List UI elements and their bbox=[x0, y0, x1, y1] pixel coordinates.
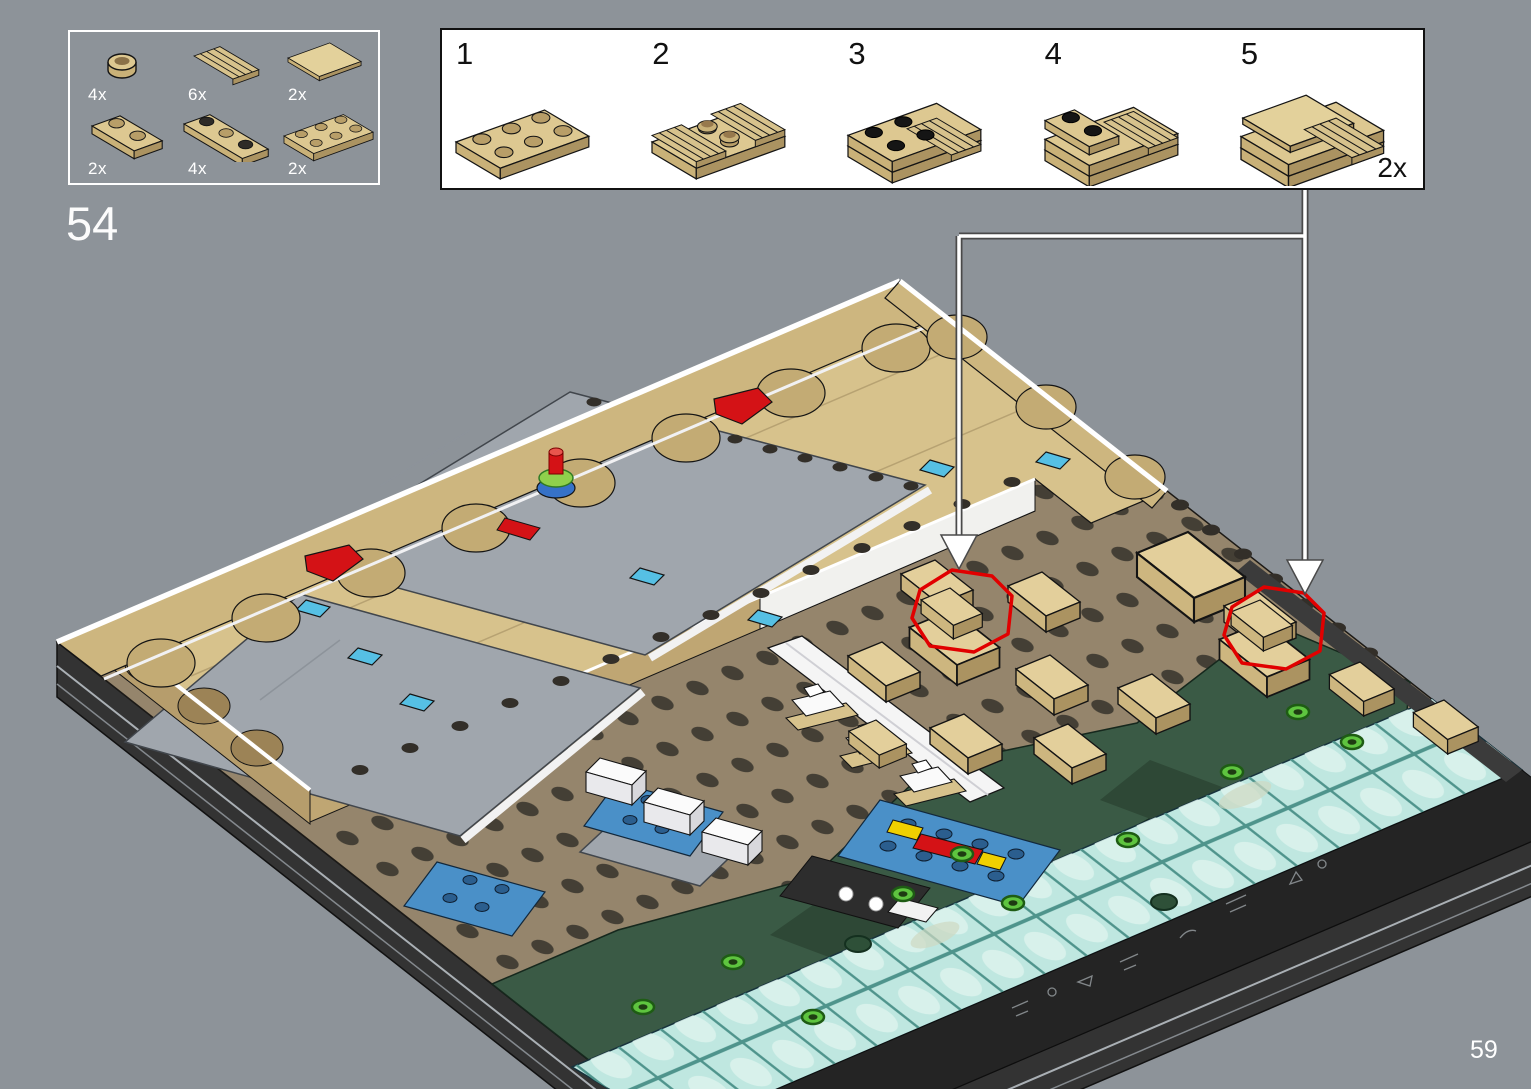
part-icon-plate-1x3 bbox=[178, 110, 274, 162]
part-count: 2x bbox=[288, 85, 378, 105]
part-item: 2x bbox=[278, 38, 378, 110]
substep-3-diagram bbox=[834, 64, 1024, 186]
page-number: 59 bbox=[1470, 1036, 1498, 1065]
part-item: 4x bbox=[178, 110, 278, 182]
substep-1-diagram bbox=[442, 64, 632, 186]
substep-4: 4 bbox=[1031, 30, 1227, 188]
substep-4-diagram bbox=[1031, 64, 1221, 186]
part-count: 2x bbox=[88, 159, 178, 179]
part-count: 6x bbox=[188, 85, 278, 105]
assembly-quantity-label: 2x bbox=[1377, 152, 1407, 184]
part-icon-grille-tile-1x2 bbox=[178, 38, 274, 88]
new-parts-callout: 4x 6x 2x 2x bbox=[68, 30, 380, 185]
step-number: 54 bbox=[66, 196, 118, 251]
substep-2-diagram bbox=[638, 64, 828, 186]
part-icon-plate-1x2 bbox=[78, 110, 174, 162]
substep-3: 3 bbox=[834, 30, 1030, 188]
substep-2: 2 bbox=[638, 30, 834, 188]
part-count: 2x bbox=[288, 159, 378, 179]
part-item: 6x bbox=[178, 38, 278, 110]
part-icon-plate-2x3 bbox=[278, 110, 374, 162]
part-icon-tile-2x2 bbox=[278, 38, 374, 88]
part-item: 4x bbox=[78, 38, 178, 110]
part-count: 4x bbox=[88, 85, 178, 105]
part-item: 2x bbox=[78, 110, 178, 182]
substep-1: 1 bbox=[442, 30, 638, 188]
part-icon-round-plate-1x1 bbox=[78, 38, 174, 88]
assembly-substeps-panel: 1 2 3 bbox=[440, 28, 1425, 190]
part-count: 4x bbox=[188, 159, 278, 179]
instruction-page: 4x 6x 2x 2x bbox=[0, 0, 1531, 1089]
part-item: 2x bbox=[278, 110, 378, 182]
